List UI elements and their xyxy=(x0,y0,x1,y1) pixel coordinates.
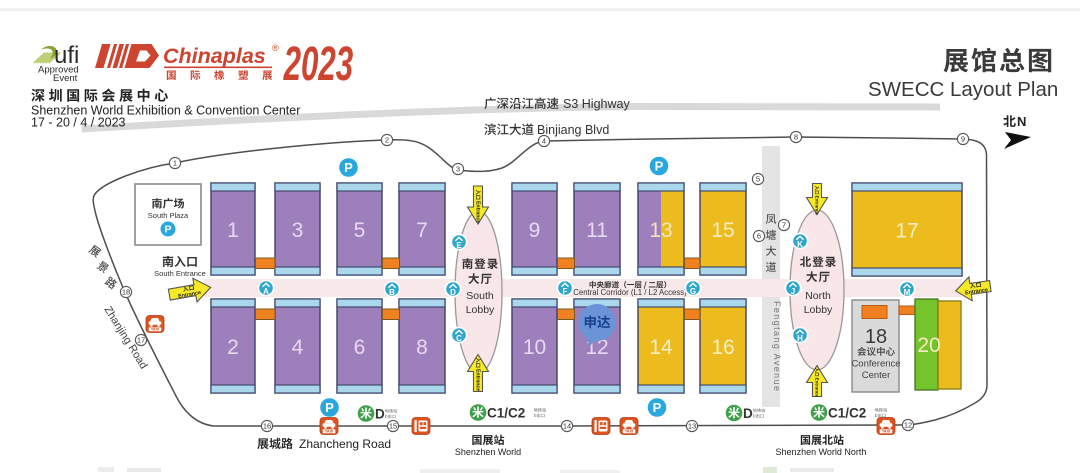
svg-text:13: 13 xyxy=(649,219,672,242)
svg-text:18: 18 xyxy=(865,326,887,348)
svg-text:7: 7 xyxy=(782,221,786,230)
svg-text:TAXI: TAXI xyxy=(325,430,333,434)
svg-text:D: D xyxy=(743,406,753,421)
svg-text:P: P xyxy=(344,160,353,175)
svg-text:TAXI: TAXI xyxy=(625,430,633,434)
svg-text:6: 6 xyxy=(354,336,366,359)
svg-text:17 - 20 / 4 / 2023: 17 - 20 / 4 / 2023 xyxy=(31,116,126,130)
svg-text:7: 7 xyxy=(416,219,428,242)
svg-text:6: 6 xyxy=(757,232,761,241)
svg-text:Center: Center xyxy=(862,370,891,381)
svg-text:1: 1 xyxy=(227,219,239,242)
svg-text:2: 2 xyxy=(227,336,239,359)
svg-text:C1/C2: C1/C2 xyxy=(828,406,866,421)
svg-text:Lobby: Lobby xyxy=(804,304,833,316)
svg-text:Entrance: Entrance xyxy=(474,369,480,391)
svg-text:9: 9 xyxy=(529,219,541,242)
svg-text:Conference: Conference xyxy=(851,359,900,370)
svg-text:F: F xyxy=(563,287,568,296)
svg-text:D: D xyxy=(375,407,385,422)
svg-text:Lobby: Lobby xyxy=(466,304,495,316)
svg-text:14: 14 xyxy=(649,336,673,359)
svg-text:16: 16 xyxy=(263,422,271,431)
svg-text:S3 Highway: S3 Highway xyxy=(563,97,630,111)
svg-text:4: 4 xyxy=(542,137,546,146)
svg-text:9: 9 xyxy=(961,135,965,144)
svg-text:P: P xyxy=(164,224,171,236)
svg-text:P: P xyxy=(653,400,662,415)
svg-text:South Plaza: South Plaza xyxy=(148,211,189,220)
svg-text:B: B xyxy=(389,288,395,297)
svg-text:Shenzhen World: Shenzhen World xyxy=(455,447,521,457)
svg-text:11: 11 xyxy=(586,219,608,242)
svg-text:C: C xyxy=(456,334,462,343)
svg-text:15: 15 xyxy=(389,422,397,431)
svg-text:SWECC Layout Plan: SWECC Layout Plan xyxy=(868,78,1058,101)
svg-text:10: 10 xyxy=(523,336,546,359)
svg-text:D: D xyxy=(450,288,456,297)
svg-text:Chinaplas: Chinaplas xyxy=(163,44,266,68)
svg-text:16: 16 xyxy=(711,336,734,359)
svg-text:4: 4 xyxy=(292,336,304,359)
svg-text:South: South xyxy=(466,290,494,302)
svg-text:Central Corridor (L1 / L2 Acce: Central Corridor (L1 / L2 Access) xyxy=(573,288,687,297)
svg-text:13: 13 xyxy=(688,422,696,431)
svg-text:Zhancheng Road: Zhancheng Road xyxy=(299,437,391,451)
svg-text:17: 17 xyxy=(895,220,918,243)
svg-text:Entrance: Entrance xyxy=(474,201,480,223)
svg-text:A: A xyxy=(263,287,269,296)
svg-text:North: North xyxy=(805,290,831,302)
svg-text:3: 3 xyxy=(292,219,304,242)
svg-text:N: N xyxy=(1017,114,1026,129)
svg-text:2023: 2023 xyxy=(283,36,354,90)
svg-text:18: 18 xyxy=(122,288,130,297)
svg-text:J: J xyxy=(791,287,795,296)
svg-text:K: K xyxy=(797,240,803,249)
svg-text:P: P xyxy=(655,159,664,174)
svg-text:E: E xyxy=(456,241,462,250)
svg-text:Fengtang Avenue: Fengtang Avenue xyxy=(772,301,782,392)
svg-text:M: M xyxy=(904,288,911,297)
svg-text:15: 15 xyxy=(711,219,734,242)
svg-text:Event: Event xyxy=(53,73,78,84)
svg-text:8: 8 xyxy=(416,336,428,359)
svg-text:Shenzhen World North: Shenzhen World North xyxy=(776,447,867,457)
svg-text:1: 1 xyxy=(173,159,177,168)
svg-text:TAXI: TAXI xyxy=(151,328,159,332)
svg-text:South Entrance: South Entrance xyxy=(154,269,206,278)
svg-text:G: G xyxy=(690,287,696,296)
svg-text:C1/C2: C1/C2 xyxy=(487,406,525,421)
svg-text:12: 12 xyxy=(904,421,912,430)
svg-text:H: H xyxy=(797,334,803,343)
svg-text:®: ® xyxy=(272,43,279,53)
svg-text:Entrance: Entrance xyxy=(814,378,819,398)
svg-text:3: 3 xyxy=(456,165,460,174)
svg-text:8: 8 xyxy=(794,133,798,142)
svg-text:P: P xyxy=(325,400,334,415)
svg-text:2: 2 xyxy=(385,136,389,145)
svg-text:17: 17 xyxy=(137,336,145,345)
svg-text:Entrance: Entrance xyxy=(814,196,819,216)
svg-text:5: 5 xyxy=(756,175,760,184)
svg-text:20: 20 xyxy=(917,334,940,357)
svg-text:Binjiang Blvd: Binjiang Blvd xyxy=(537,123,609,137)
svg-text:TAXI: TAXI xyxy=(882,430,890,434)
svg-text:5: 5 xyxy=(354,219,366,242)
svg-text:14: 14 xyxy=(563,422,571,431)
